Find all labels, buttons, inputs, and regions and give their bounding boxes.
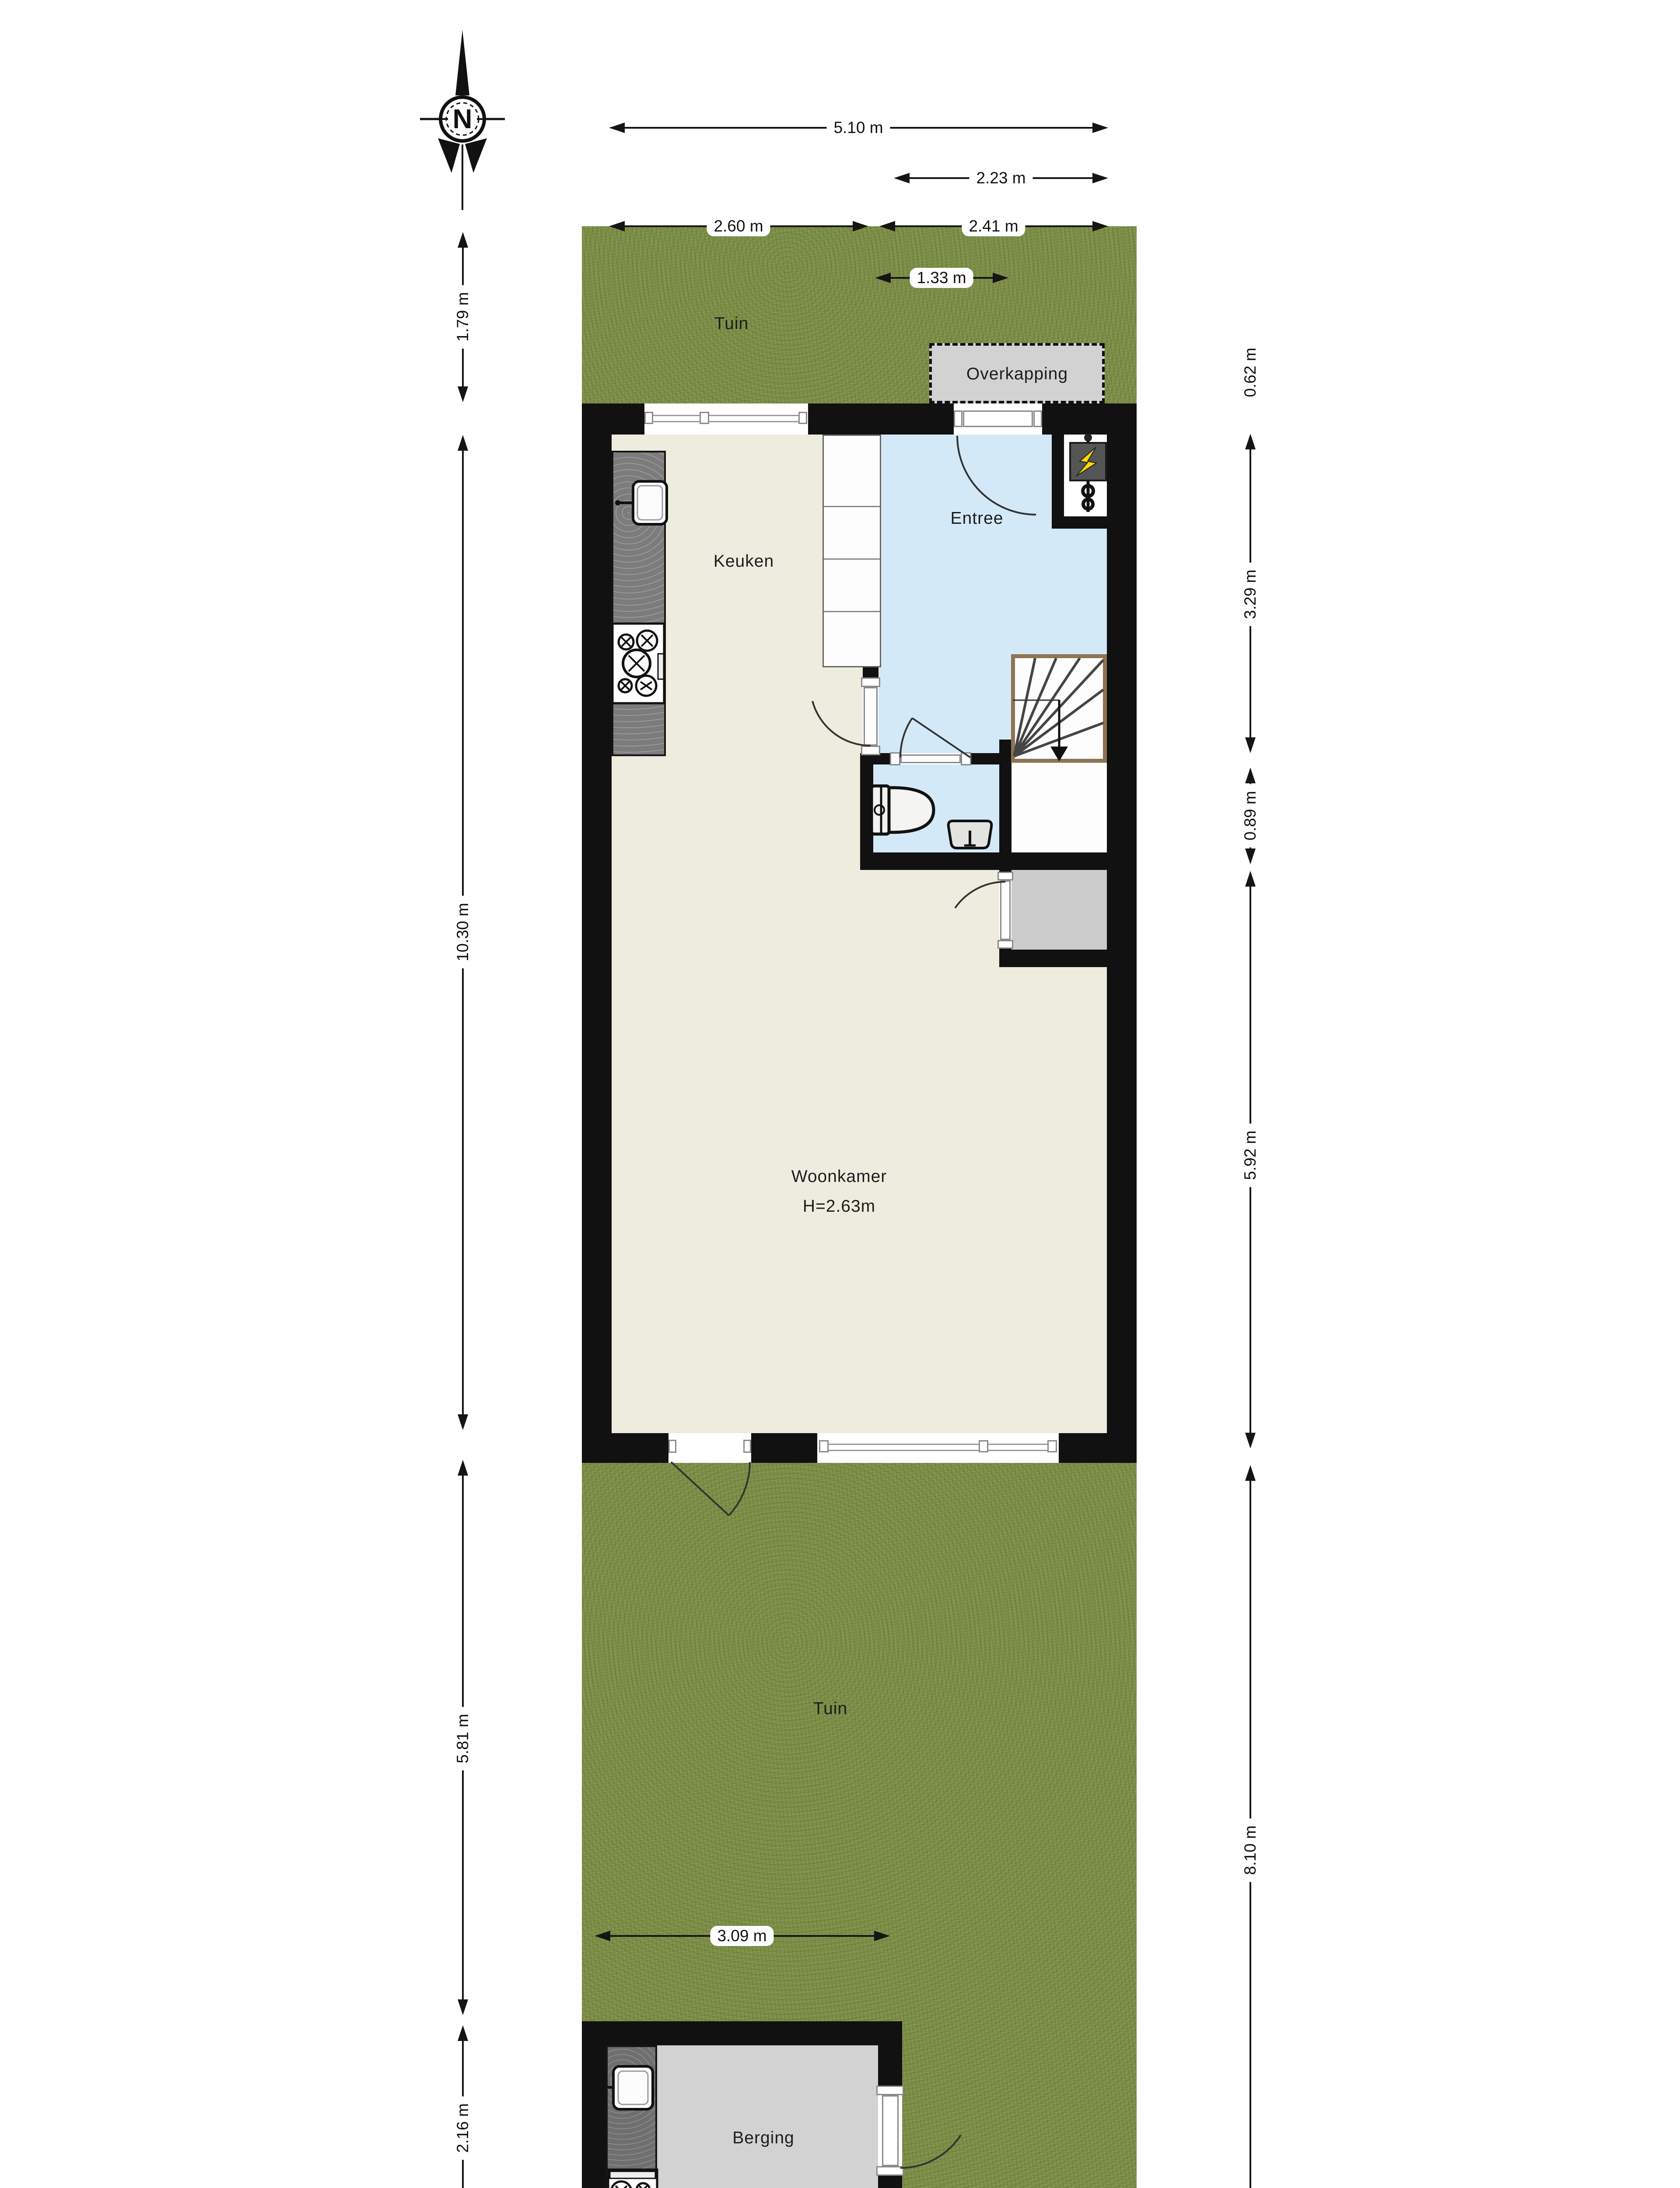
room-label-woonkamer: Woonkamer bbox=[791, 1167, 887, 1186]
berging-door-slab bbox=[882, 2095, 899, 2166]
door-entree-toilet-slab bbox=[900, 754, 961, 763]
door-entree-woonkamer-jamb-top bbox=[861, 677, 880, 687]
window-keuken-glass-line bbox=[646, 415, 806, 416]
front-door-jamb-right bbox=[1033, 410, 1042, 427]
window-woonkamer-glass-line bbox=[824, 1444, 1052, 1445]
door-closet-jamb-top bbox=[997, 872, 1013, 880]
wall-left bbox=[582, 403, 612, 1463]
dim-label-223: 2.23 m bbox=[969, 168, 1032, 188]
wall-stairs-left bbox=[999, 740, 1011, 870]
window-keuken bbox=[644, 403, 808, 435]
window-woonkamer-post-left bbox=[819, 1440, 829, 1452]
berging-door-jamb-bottom bbox=[876, 2166, 904, 2176]
compass-inner-circle bbox=[446, 103, 479, 135]
kitchen-cabinet-column bbox=[822, 435, 881, 667]
kitchen-counter bbox=[612, 451, 666, 756]
dim-label-241: 2.41 m bbox=[962, 216, 1025, 236]
cabinet-divider bbox=[824, 558, 880, 560]
compass-circle bbox=[441, 97, 484, 141]
door-entree-toilet-jamb-left bbox=[890, 752, 900, 765]
dim-label-216: 2.16 m bbox=[453, 2096, 473, 2160]
berging-counter bbox=[606, 2045, 657, 2188]
window-woonkamer-post-mid bbox=[979, 1440, 988, 1452]
room-label-keuken: Keuken bbox=[714, 552, 774, 571]
door-entree-toilet-jamb-right bbox=[961, 752, 971, 765]
wall-mid-horizontal bbox=[860, 852, 1107, 870]
dim-label-592: 5.92 m bbox=[1240, 1123, 1260, 1187]
dim-label-062: 0.62 m bbox=[1240, 340, 1260, 404]
compass-north-spike bbox=[455, 30, 469, 95]
dim-label-810: 8.10 m bbox=[1240, 1818, 1260, 1882]
compass-rose bbox=[420, 30, 505, 210]
staircase-box bbox=[1011, 654, 1107, 763]
compass-letter: N bbox=[453, 104, 472, 134]
window-woonkamer-post-right bbox=[1047, 1440, 1057, 1452]
room-label-berging: Berging bbox=[732, 2128, 794, 2148]
front-door-jamb-left bbox=[954, 410, 962, 427]
dim-label-089: 0.89 m bbox=[1240, 784, 1260, 847]
floorplan-page: { "compass": { "letter": "N" }, "rooms":… bbox=[0, 0, 1680, 2188]
berging-door-jamb-top bbox=[876, 2086, 904, 2095]
window-woonkamer-glass-line2 bbox=[824, 1450, 1052, 1451]
dim-label-133: 1.33 m bbox=[910, 268, 973, 288]
dim-label-260: 2.60 m bbox=[707, 216, 770, 236]
cabinet-divider bbox=[824, 506, 880, 507]
room-label-entree: Entree bbox=[951, 509, 1004, 528]
room-label-tuin-bottom: Tuin bbox=[813, 1699, 847, 1718]
wall-meterkast-bottom bbox=[1052, 516, 1107, 529]
garden-door-jamb-left bbox=[668, 1440, 676, 1453]
room-label-tuin-top: Tuin bbox=[714, 314, 749, 333]
garden-door-jamb-right bbox=[743, 1440, 751, 1453]
front-door-slab bbox=[963, 410, 1033, 427]
room-label-woonkamer-height: H=2.63m bbox=[803, 1197, 875, 1216]
room-label-overkapping: Overkapping bbox=[966, 365, 1068, 384]
floor-toilet bbox=[873, 764, 999, 853]
dim-label-179: 1.79 m bbox=[453, 285, 473, 348]
door-entree-woonkamer-jamb-bottom bbox=[861, 746, 880, 755]
dim-label-329: 3.29 m bbox=[1240, 562, 1260, 626]
window-keuken-post-mid bbox=[700, 412, 709, 424]
wall-closet-bottom bbox=[999, 950, 1107, 967]
window-keuken-glass-line2 bbox=[646, 421, 806, 422]
floor-gray-closet bbox=[1011, 870, 1107, 950]
dim-label-309: 3.09 m bbox=[710, 1926, 773, 1946]
compass-wing-right bbox=[465, 138, 487, 173]
floor-understairs-closet bbox=[1011, 763, 1107, 852]
window-woonkamer bbox=[817, 1433, 1059, 1463]
dim-label-581: 5.81 m bbox=[453, 1707, 473, 1770]
wall-toilet-left bbox=[860, 764, 873, 864]
compass-wing-left bbox=[438, 138, 460, 173]
dim-label-1030: 10.30 m bbox=[453, 896, 473, 968]
door-closet-jamb-bottom bbox=[997, 940, 1013, 949]
window-keuken-post-left bbox=[644, 412, 653, 424]
wall-meterkast-left bbox=[1052, 435, 1064, 529]
floor-meterkast bbox=[1064, 435, 1107, 516]
dim-label-510: 5.10 m bbox=[826, 118, 890, 138]
door-closet-slab bbox=[1000, 880, 1011, 940]
wall-right bbox=[1107, 403, 1137, 1463]
window-keuken-post-right bbox=[798, 412, 807, 424]
garden-door-opening bbox=[668, 1433, 751, 1463]
cabinet-divider bbox=[824, 611, 880, 612]
door-entree-woonkamer-slab bbox=[864, 687, 878, 746]
